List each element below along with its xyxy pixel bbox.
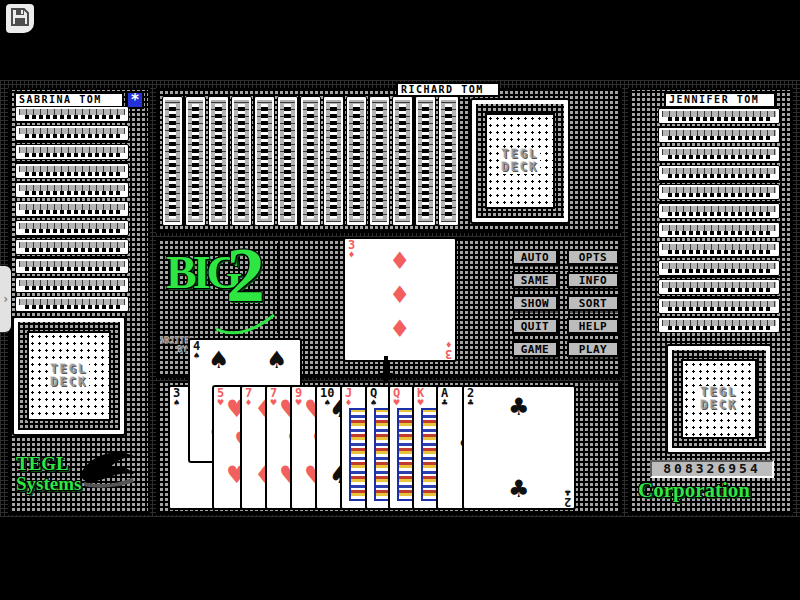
action-button-grid: AUTOOPTSSAMEINFOSHOWSORTQUITHELPGAMEPLAY (512, 249, 619, 357)
opponent-card-back-edge (658, 222, 780, 238)
opponent-card-back-edge (15, 277, 129, 293)
card-back-left: TEGL DECK (12, 316, 126, 436)
panel-player-right: JENNIFER TOM TEGL DECK 808326954 Corpora… (628, 88, 793, 515)
save-button[interactable] (6, 4, 34, 33)
opponent-card-back-edge (15, 258, 129, 274)
panel-player-top: TEGL DECK (156, 88, 622, 233)
opponent-card-back-edge (277, 96, 298, 226)
diamond-pip-icon: ♦ (389, 283, 411, 307)
opponent-card-back-edge (162, 96, 183, 226)
spade-pip-icon: ♠ (266, 348, 288, 372)
club-pip-icon: ♣ (508, 395, 530, 419)
diamond-pip-icon: ♦ (389, 249, 411, 273)
opponent-card-back-edge (185, 96, 206, 226)
opponent-card-back-edge (15, 125, 129, 141)
opponent-card-back-edge (369, 96, 390, 226)
button-auto[interactable]: AUTO (512, 249, 558, 265)
card-2-club[interactable]: 2♣2♣♣♣ (462, 385, 576, 510)
player-name-top: RICHARD TOM (396, 82, 500, 97)
opponent-card-back-edge (346, 96, 367, 226)
panel-player-left: SABRINA TOM * TEGL DECK TEGL Systems (8, 88, 150, 515)
player-name-right: JENNIFER TOM (664, 92, 776, 108)
opponent-card-back-edge (15, 163, 129, 179)
club-pip-icon: ♣ (508, 477, 530, 501)
button-game[interactable]: GAME (512, 341, 558, 357)
cursor-arrow-icon (378, 356, 394, 389)
opponent-card-back-edge (438, 96, 459, 226)
deck-label: DECK (49, 376, 90, 389)
opponent-card-back-edge (15, 296, 129, 312)
opponent-card-back-edge (208, 96, 229, 226)
sidebar-expand-tab[interactable]: › (0, 266, 11, 332)
opponent-card-back-edge (658, 260, 780, 276)
opponent-card-back-edge (658, 317, 780, 333)
bird-logo-icon (78, 448, 140, 494)
floppy-disk-icon (10, 7, 30, 31)
button-help[interactable]: HELP (567, 318, 619, 334)
opponent-card-back-edge (658, 108, 780, 124)
opponent-card-back-edge (658, 146, 780, 162)
opponent-card-back-edge (15, 106, 129, 122)
spade-pip-icon: ♠ (208, 348, 230, 372)
button-info[interactable]: INFO (567, 272, 619, 288)
opponent-card-back-edge (300, 96, 321, 226)
button-opts[interactable]: OPTS (567, 249, 619, 265)
company-logo-corporation: Corporation (638, 478, 750, 503)
opponent-card-back-edge (658, 127, 780, 143)
card-back-top: TEGL DECK (470, 98, 570, 224)
opponent-card-back-edge (15, 239, 129, 255)
diamond-pip-icon: ♦ (389, 317, 411, 341)
credit-text: WRITTEN BY (160, 336, 187, 354)
opponent-card-back-edge (231, 96, 252, 226)
card-back-right: TEGL DECK (666, 344, 772, 454)
opponent-card-back-edge (15, 220, 129, 236)
logo-swoosh-icon (212, 311, 278, 341)
button-quit[interactable]: QUIT (512, 318, 558, 334)
opponent-card-back-edge (254, 96, 275, 226)
opponent-card-back-edge (658, 279, 780, 295)
deck-label: DECK (699, 399, 740, 412)
played-card-3-diamond[interactable]: 3♦3♦♦♦♦ (343, 237, 457, 362)
opponent-card-back-edge (658, 298, 780, 314)
deck-label: DECK (500, 161, 541, 174)
button-same[interactable]: SAME (512, 272, 558, 288)
opponent-card-back-edge (658, 184, 780, 200)
opponent-card-back-edge (15, 201, 129, 217)
score-display: 808326954 (650, 460, 774, 478)
top-player-cards (162, 96, 459, 228)
chevron-right-icon: › (2, 292, 9, 306)
right-player-cards (658, 108, 780, 333)
opponent-card-back-edge (15, 182, 129, 198)
button-show[interactable]: SHOW (512, 295, 558, 311)
left-player-cards (15, 106, 129, 312)
opponent-card-back-edge (392, 96, 413, 226)
opponent-card-back-edge (15, 144, 129, 160)
opponent-card-back-edge (658, 203, 780, 219)
opponent-card-back-edge (658, 165, 780, 181)
opponent-card-back-edge (323, 96, 344, 226)
opponent-card-back-edge (658, 241, 780, 257)
big2-logo: BIG 2 (164, 241, 280, 337)
button-play[interactable]: PLAY (567, 341, 619, 357)
button-sort[interactable]: SORT (567, 295, 619, 311)
company-logo-text: TEGL Systems (16, 454, 81, 494)
opponent-card-back-edge (415, 96, 436, 226)
logo-frame-line (277, 243, 279, 333)
